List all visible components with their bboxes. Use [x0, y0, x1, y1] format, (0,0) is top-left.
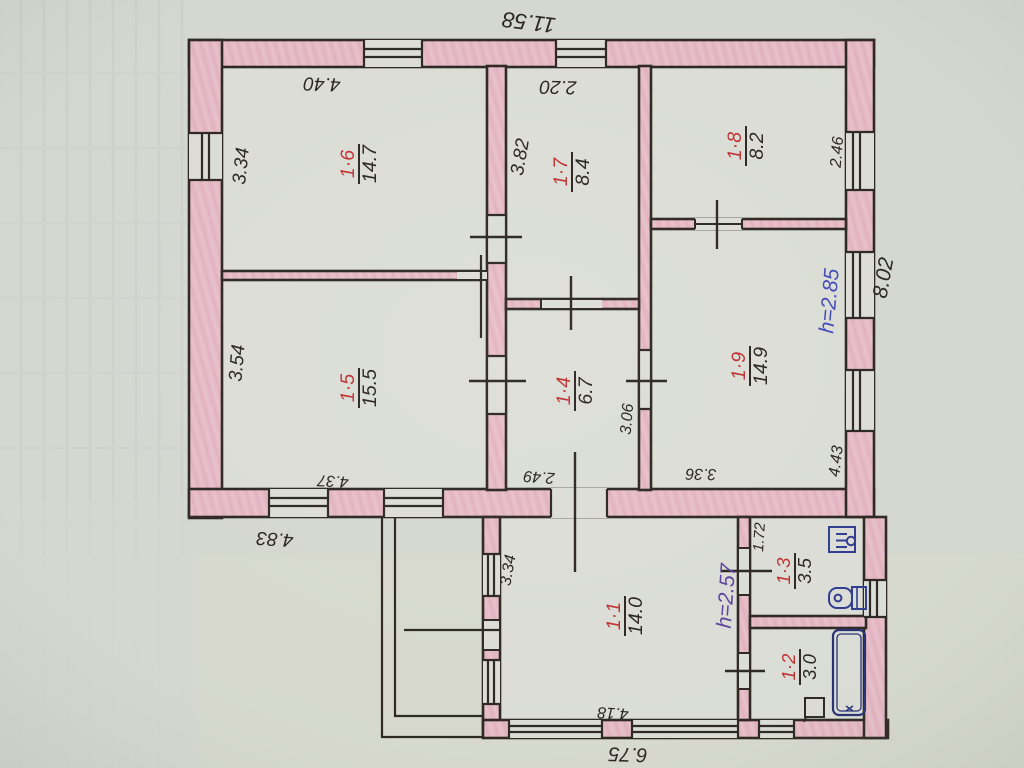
svg-text:6.75: 6.75 [607, 742, 648, 765]
svg-text:2.46: 2.46 [828, 136, 848, 170]
svg-text:4.40: 4.40 [303, 72, 341, 94]
svg-text:3.06: 3.06 [618, 403, 638, 436]
svg-text:1·6: 1·6 [337, 150, 359, 178]
svg-text:1·3: 1·3 [773, 557, 794, 584]
svg-text:1.72: 1.72 [750, 521, 769, 552]
svg-text:15.5: 15.5 [359, 369, 381, 407]
svg-text:3.54: 3.54 [225, 344, 249, 383]
svg-text:6.7: 6.7 [575, 376, 597, 404]
svg-text:1·9: 1·9 [728, 352, 750, 380]
svg-text:1·2: 1·2 [778, 653, 799, 680]
svg-text:1·8: 1·8 [724, 132, 746, 160]
svg-text:14.0: 14.0 [625, 597, 647, 635]
svg-text:3.5: 3.5 [794, 557, 815, 583]
svg-text:4.37: 4.37 [316, 471, 349, 490]
svg-text:3.34: 3.34 [229, 147, 254, 186]
svg-text:8.4: 8.4 [572, 158, 594, 185]
svg-text:3.0: 3.0 [799, 653, 820, 679]
svg-text:8.2: 8.2 [746, 132, 768, 159]
svg-text:4.18: 4.18 [597, 703, 629, 722]
svg-text:1·1: 1·1 [603, 602, 625, 630]
svg-text:14.9: 14.9 [750, 347, 772, 385]
svg-text:4.83: 4.83 [255, 527, 294, 551]
svg-text:14.7: 14.7 [359, 144, 381, 183]
svg-text:1·4: 1·4 [553, 377, 575, 405]
svg-text:1·7: 1·7 [550, 157, 572, 186]
svg-text:h=2.57: h=2.57 [713, 562, 741, 630]
svg-text:2.20: 2.20 [539, 76, 578, 98]
svg-text:1·5: 1·5 [337, 374, 359, 402]
svg-text:2.49: 2.49 [523, 467, 556, 486]
svg-text:3.36: 3.36 [685, 465, 717, 483]
